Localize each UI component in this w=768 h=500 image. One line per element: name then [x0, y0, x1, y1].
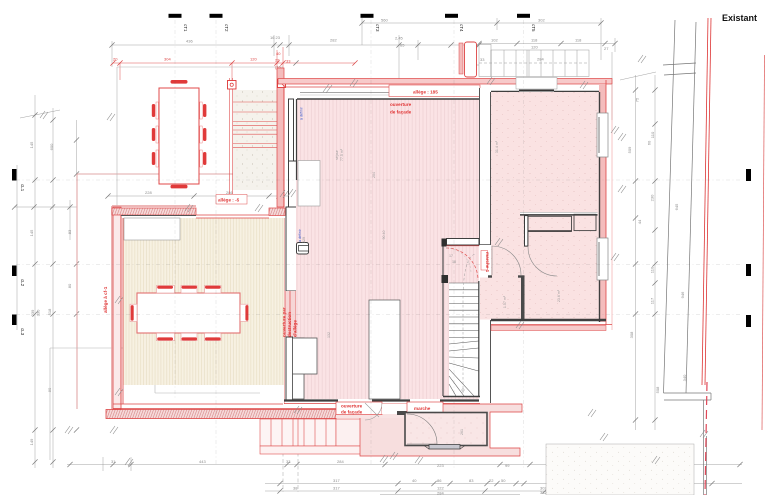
svg-text:40: 40 [412, 478, 417, 483]
svg-text:de façade: de façade [341, 410, 363, 415]
svg-text:110: 110 [650, 131, 655, 138]
svg-text:marche 1: marche 1 [485, 252, 490, 273]
svg-text:allège : 185: allège : 185 [413, 90, 438, 95]
svg-text:118: 118 [531, 38, 538, 43]
svg-text:600: 600 [49, 143, 54, 150]
svg-text:ouverture par: ouverture par [282, 307, 287, 337]
svg-text:27: 27 [604, 46, 609, 51]
svg-text:cL3: cL3 [20, 328, 25, 336]
svg-text:132: 132 [327, 332, 331, 338]
svg-text:50: 50 [501, 478, 506, 483]
svg-text:99: 99 [505, 463, 510, 468]
svg-text:120: 120 [250, 57, 257, 62]
svg-text:443: 443 [199, 459, 206, 464]
svg-text:223: 223 [437, 463, 444, 468]
svg-text:de façade: de façade [390, 110, 412, 115]
svg-text:38: 38 [293, 486, 298, 491]
svg-text:83: 83 [67, 229, 72, 234]
svg-text:149: 149 [29, 438, 34, 445]
svg-text:allège à cf-1: allège à cf-1 [103, 286, 108, 313]
svg-text:77.5 m²: 77.5 m² [340, 148, 344, 161]
svg-text:436: 436 [186, 39, 193, 44]
svg-text:33: 33 [286, 459, 291, 464]
svg-text:cT1: cT1 [183, 24, 188, 32]
svg-text:marche: marche [414, 406, 431, 411]
svg-text:83: 83 [469, 478, 474, 483]
svg-text:120: 120 [531, 45, 538, 50]
svg-text:cL2: cL2 [20, 279, 25, 287]
svg-text:20: 20 [113, 57, 118, 62]
svg-text:90.40: 90.40 [382, 231, 386, 240]
svg-text:282: 282 [330, 38, 337, 43]
svg-text:16 23: 16 23 [270, 35, 281, 40]
svg-text:80: 80 [47, 387, 52, 392]
svg-text:60: 60 [647, 140, 652, 145]
svg-text:80: 80 [67, 283, 72, 288]
svg-text:284: 284 [437, 491, 444, 496]
svg-text:102: 102 [491, 38, 498, 43]
svg-text:330: 330 [36, 309, 41, 316]
svg-text:118: 118 [575, 38, 582, 43]
svg-text:destruction: destruction [287, 312, 292, 337]
svg-text:204: 204 [372, 172, 376, 178]
svg-text:22: 22 [275, 58, 280, 63]
svg-text:31: 31 [111, 459, 116, 464]
svg-text:560: 560 [381, 18, 388, 23]
svg-text:ouverture: ouverture [341, 404, 363, 409]
svg-text:1.57 m²: 1.57 m² [503, 295, 507, 308]
svg-text:317: 317 [333, 478, 340, 483]
svg-text:284: 284 [337, 459, 344, 464]
svg-text:239: 239 [30, 309, 35, 316]
svg-text:645: 645 [674, 203, 679, 210]
svg-text:304: 304 [164, 57, 171, 62]
svg-text:317: 317 [333, 486, 340, 491]
svg-text:cT5: cT5 [531, 24, 536, 32]
svg-text:23.6 m²: 23.6 m² [557, 289, 561, 302]
svg-text:cT4: cT4 [459, 24, 464, 32]
svg-text:110: 110 [650, 266, 655, 273]
svg-text:allège : -5: allège : -5 [218, 198, 240, 203]
svg-text:117: 117 [650, 297, 655, 304]
svg-text:145: 145 [29, 229, 34, 236]
svg-text:à définir: à définir [298, 228, 302, 242]
svg-text:séjour: séjour [335, 149, 339, 160]
svg-text:à définir: à définir [300, 106, 304, 120]
svg-text:d'allège: d'allège [293, 320, 298, 337]
svg-text:145: 145 [29, 141, 34, 148]
svg-text:22: 22 [489, 478, 494, 483]
svg-text:31.4 m²: 31.4 m² [495, 140, 499, 153]
svg-text:86: 86 [437, 478, 442, 483]
svg-text:75: 75 [635, 97, 640, 102]
svg-text:cT3: cT3 [375, 24, 380, 32]
svg-text:329: 329 [302, 237, 306, 243]
svg-text:33: 33 [480, 57, 485, 62]
svg-text:508: 508 [655, 386, 660, 393]
svg-text:17: 17 [449, 254, 453, 258]
svg-text:308: 308 [629, 331, 634, 338]
svg-text:261: 261 [460, 429, 464, 435]
svg-text:44: 44 [637, 219, 642, 224]
svg-text:284: 284 [537, 57, 544, 62]
svg-text:228: 228 [145, 190, 152, 195]
svg-text:cT2: cT2 [224, 24, 229, 32]
svg-text:65: 65 [400, 43, 405, 48]
svg-text:946: 946 [680, 291, 685, 298]
svg-text:509: 509 [627, 146, 632, 153]
svg-text:33: 33 [286, 59, 291, 64]
svg-text:230: 230 [650, 194, 655, 201]
svg-text:40: 40 [276, 51, 281, 56]
svg-text:302: 302 [538, 18, 545, 23]
svg-text:ouverture: ouverture [390, 102, 412, 107]
svg-text:518: 518 [47, 308, 52, 315]
svg-text:Existant: Existant [722, 13, 757, 23]
svg-text:2,45: 2,45 [395, 36, 404, 41]
svg-text:cL1: cL1 [20, 184, 25, 192]
